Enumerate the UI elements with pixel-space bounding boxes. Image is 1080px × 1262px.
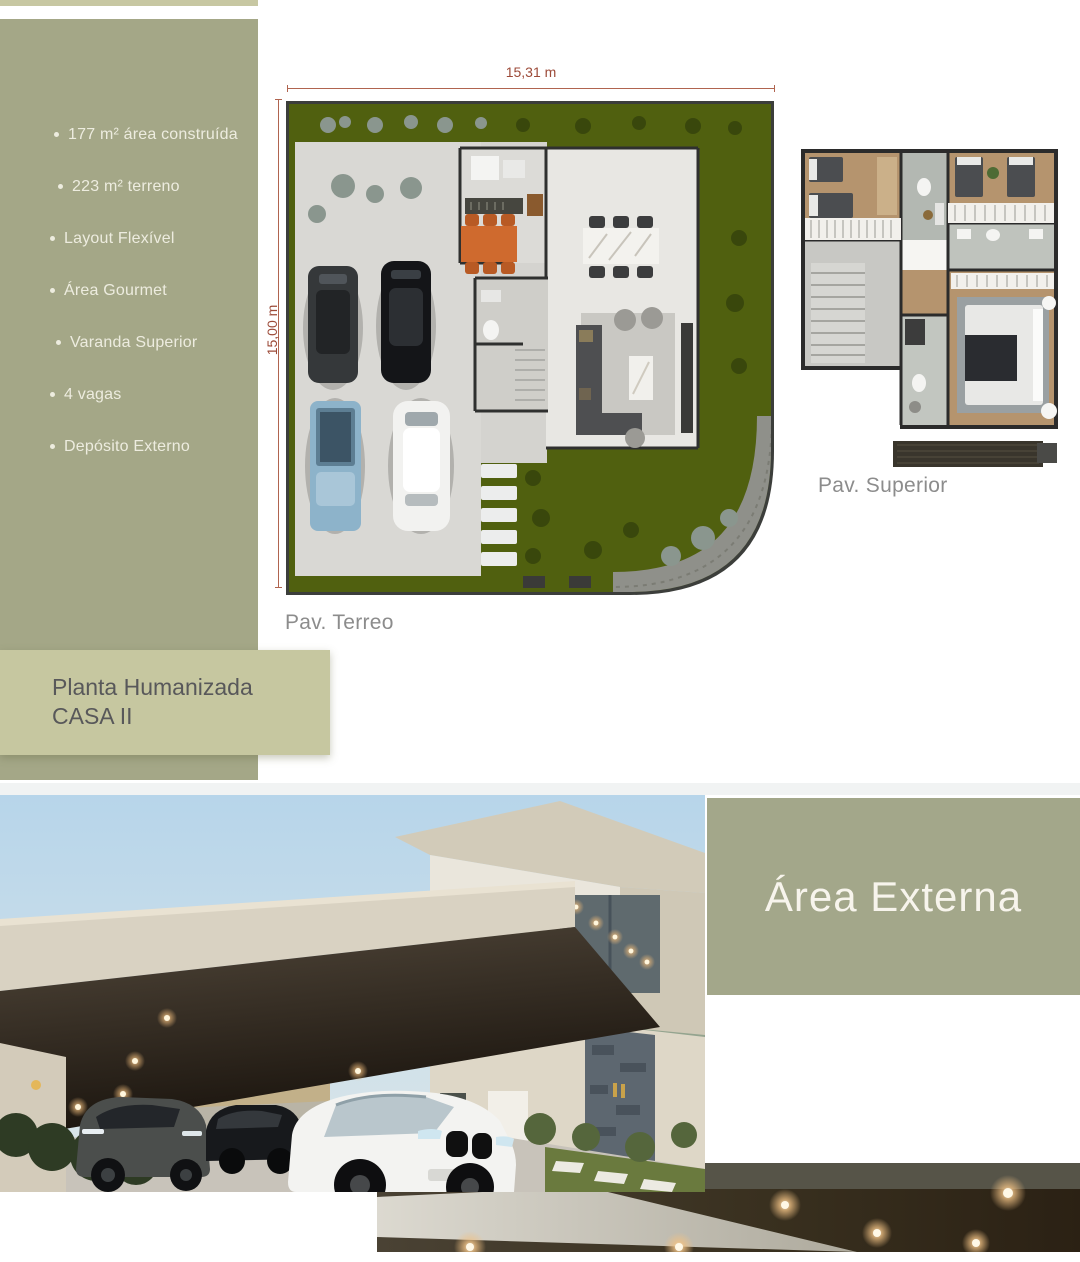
bullet-dot-icon (54, 132, 59, 137)
bullet-dot-icon (50, 236, 55, 241)
bullet-dot-icon (50, 392, 55, 397)
feature-label: 177 m² área construída (68, 125, 238, 144)
feature-label: Depósito Externo (64, 437, 190, 456)
feature-item: 223 m² terreno (58, 177, 244, 196)
title-line-1: Planta Humanizada (52, 673, 330, 702)
ground-floor-plan-image (283, 98, 777, 598)
feature-item: 177 m² área construída (54, 125, 244, 144)
section-divider (0, 783, 1080, 795)
bullet-dot-icon (50, 288, 55, 293)
features-list: 177 m² área construída 223 m² terreno La… (0, 19, 258, 456)
external-area-panel: Área Externa (707, 798, 1080, 995)
brochure-page: 177 m² área construída 223 m² terreno La… (0, 0, 1080, 1262)
upper-floor-plan-image (797, 145, 1062, 470)
external-area-title: Área Externa (765, 873, 1022, 921)
bullet-dot-icon (58, 184, 63, 189)
bullet-dot-icon (50, 444, 55, 449)
feature-label: Layout Flexível (64, 229, 175, 248)
feature-label: Varanda Superior (70, 333, 197, 352)
feature-label: Área Gourmet (64, 281, 167, 300)
dimension-width-label: 15,31 m (287, 64, 775, 80)
bullet-dot-icon (56, 340, 61, 345)
feature-item: 4 vagas (50, 385, 244, 404)
feature-label: 223 m² terreno (72, 177, 180, 196)
title-box: Planta Humanizada CASA II (0, 650, 330, 755)
feature-label: 4 vagas (64, 385, 121, 404)
title-line-2: CASA II (52, 702, 330, 731)
feature-item: Área Gourmet (50, 281, 244, 300)
top-accent-bar (0, 0, 258, 6)
exterior-photo (0, 795, 705, 1192)
upper-floor-caption: Pav. Superior (818, 474, 948, 498)
feature-item: Depósito Externo (50, 437, 244, 456)
ground-floor-caption: Pav. Terreo (285, 611, 394, 635)
feature-item: Layout Flexível (50, 229, 244, 248)
dimension-line-horizontal (287, 88, 775, 89)
feature-item: Varanda Superior (56, 333, 244, 352)
